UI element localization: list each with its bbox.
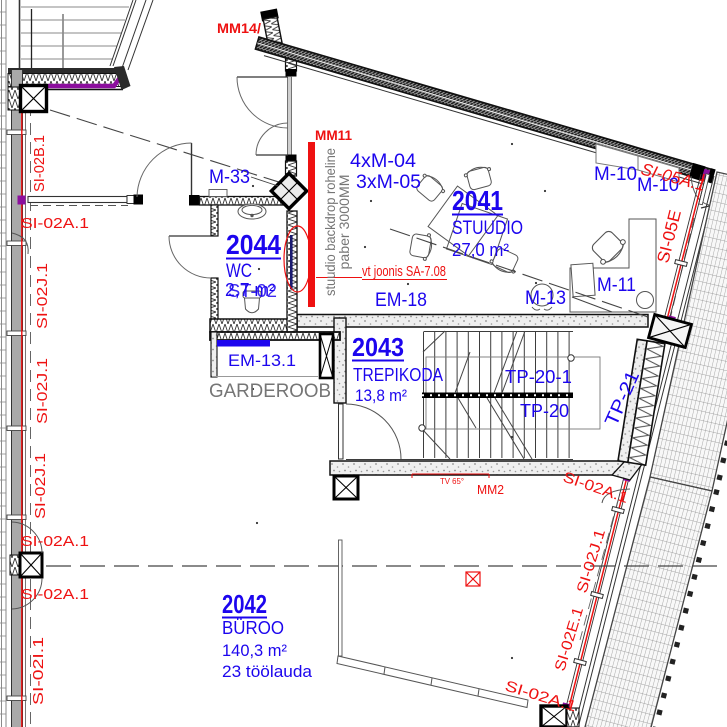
svg-text:paber 3000MM: paber 3000MM	[336, 175, 352, 270]
svg-text:SI-02A.1: SI-02A.1	[21, 215, 89, 232]
svg-text:2044: 2044	[226, 229, 281, 260]
svg-text:SI-02I.1: SI-02I.1	[30, 637, 47, 705]
svg-text:TV 65°: TV 65°	[440, 477, 464, 486]
svg-text:23 töölauda: 23 töölauda	[222, 662, 313, 681]
svg-text:M-33: M-33	[209, 167, 250, 188]
svg-text:SI-02A.1: SI-02A.1	[21, 586, 89, 603]
svg-text:M-13: M-13	[525, 288, 566, 309]
svg-text:WC: WC	[226, 261, 252, 282]
svg-text:M-10: M-10	[594, 164, 637, 185]
svg-text:2043: 2043	[352, 332, 404, 362]
svg-text:SI-02J.1: SI-02J.1	[34, 263, 51, 329]
svg-text:TP-20-1: TP-20-1	[505, 367, 572, 387]
svg-text:vt joonis SA-7.08: vt joonis SA-7.08	[362, 263, 446, 280]
svg-text:140,3 m²: 140,3 m²	[222, 641, 287, 660]
svg-text:2041: 2041	[452, 185, 503, 216]
svg-text:BÜROO: BÜROO	[222, 618, 284, 638]
svg-text:SI-02J.1: SI-02J.1	[34, 358, 51, 424]
svg-text:TP-20: TP-20	[520, 401, 569, 421]
svg-text:MM14/: MM14/	[217, 20, 261, 36]
svg-text:TREPIKODA: TREPIKODA	[353, 365, 443, 385]
svg-text:EM-13.1: EM-13.1	[228, 351, 296, 370]
svg-text:M-11: M-11	[597, 275, 636, 296]
svg-text:ST-02: ST-02	[228, 281, 277, 301]
svg-text:13,8 m²: 13,8 m²	[355, 386, 407, 405]
svg-text:SI-02B.1: SI-02B.1	[31, 135, 48, 192]
svg-text:STUUDIO: STUUDIO	[452, 218, 523, 239]
svg-text:EM-18: EM-18	[375, 290, 427, 311]
svg-text:SI-02J.1: SI-02J.1	[32, 453, 49, 519]
svg-text:GARDEROOB: GARDEROOB	[209, 381, 331, 402]
svg-text:27,0 m²: 27,0 m²	[452, 240, 509, 260]
svg-text:MM11: MM11	[315, 127, 352, 143]
svg-text:MM2: MM2	[477, 482, 504, 497]
svg-text:4xM-04: 4xM-04	[350, 151, 416, 172]
svg-text:3xM-05: 3xM-05	[356, 172, 421, 193]
svg-text:2042: 2042	[222, 589, 267, 619]
svg-text:SI-02A.1: SI-02A.1	[21, 533, 89, 550]
